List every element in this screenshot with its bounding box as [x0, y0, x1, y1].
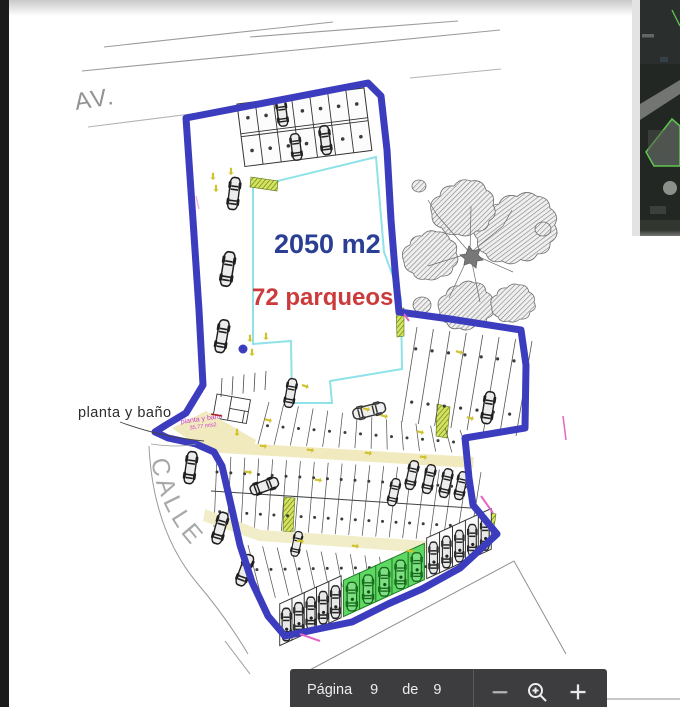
svg-text:planta y baño: planta y baño — [78, 405, 172, 421]
svg-text:72 parqueos: 72 parqueos — [252, 284, 393, 311]
svg-text:AV.: AV. — [73, 83, 117, 116]
svg-text:CALLE: CALLE — [145, 455, 211, 552]
svg-text:2050 m2: 2050 m2 — [274, 229, 381, 259]
